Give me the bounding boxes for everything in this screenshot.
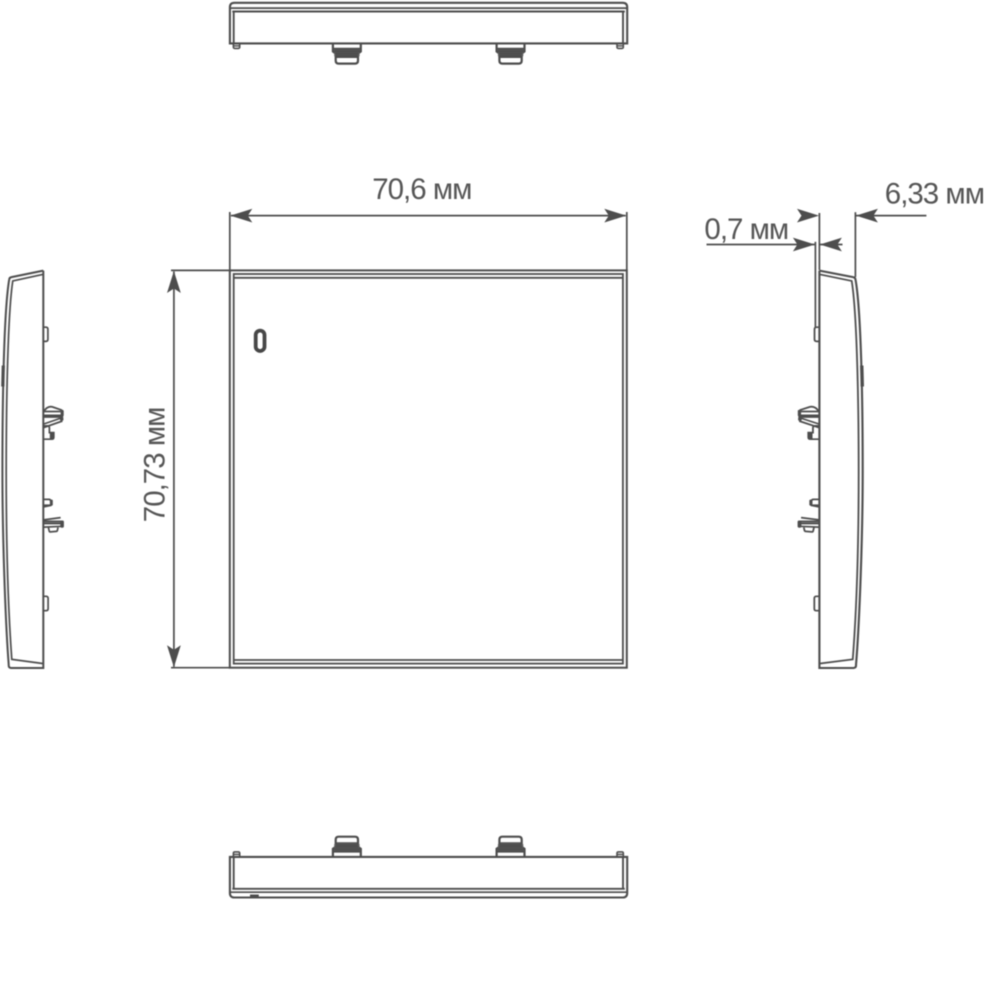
svg-text:70,73 мм: 70,73 мм	[139, 408, 172, 523]
svg-text:0,7 мм: 0,7 мм	[704, 213, 788, 246]
svg-text:6,33 мм: 6,33 мм	[885, 178, 984, 211]
svg-text:70,6 мм: 70,6 мм	[372, 173, 471, 206]
